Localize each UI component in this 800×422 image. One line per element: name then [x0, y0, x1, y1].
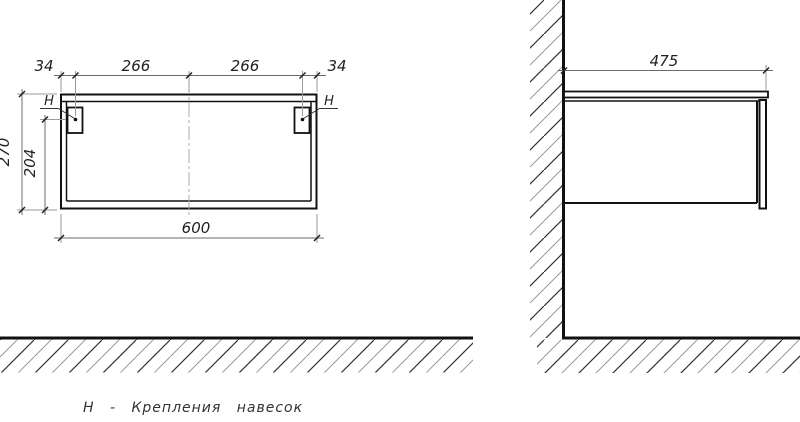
depth-dimension: 475	[558, 52, 773, 90]
wall-hatch	[530, 0, 564, 338]
width-dimension: 600	[54, 214, 324, 243]
side-view: 475	[530, 0, 800, 373]
hanger-label-left: Н	[44, 94, 54, 109]
hanger-height-dimension: 204	[21, 115, 66, 215]
dim-34-left: 34	[34, 57, 53, 75]
side-floor-hatch	[537, 340, 800, 374]
front-view: Н Н 34 266 266 34	[0, 57, 473, 373]
dim-600: 600	[182, 219, 211, 237]
legend-note: Н - Крепления навесок	[83, 400, 303, 416]
hanger-label-right: Н	[324, 94, 334, 109]
dim-204: 204	[21, 149, 39, 178]
dim-34-right: 34	[327, 57, 346, 75]
cabinet-drawing-canvas: Н Н 34 266 266 34	[0, 0, 800, 422]
dim-266-right: 266	[231, 57, 260, 75]
dim-266-left: 266	[122, 57, 151, 75]
front-ground-hatch	[0, 340, 473, 373]
dim-475: 475	[650, 52, 679, 70]
cabinet-side-top-panel	[564, 92, 768, 98]
dim-270: 270	[0, 138, 13, 167]
cabinet-side-door-panel	[760, 100, 767, 209]
technical-drawing-page: Н Н 34 266 266 34	[0, 0, 800, 422]
